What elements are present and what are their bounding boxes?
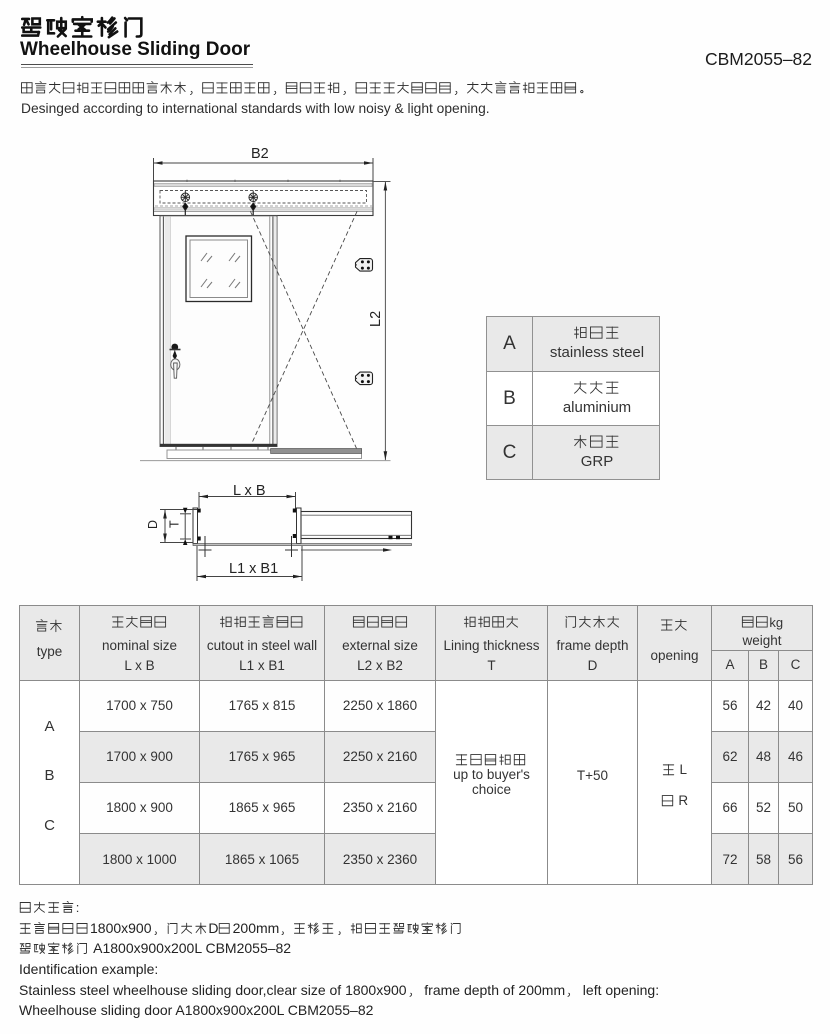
svg-text:T: T (168, 520, 182, 528)
svg-text:B2: B2 (251, 146, 269, 162)
svg-text:L2: L2 (368, 311, 384, 327)
svg-text:L1 x B1: L1 x B1 (229, 561, 278, 577)
svg-text:D: D (146, 520, 160, 529)
